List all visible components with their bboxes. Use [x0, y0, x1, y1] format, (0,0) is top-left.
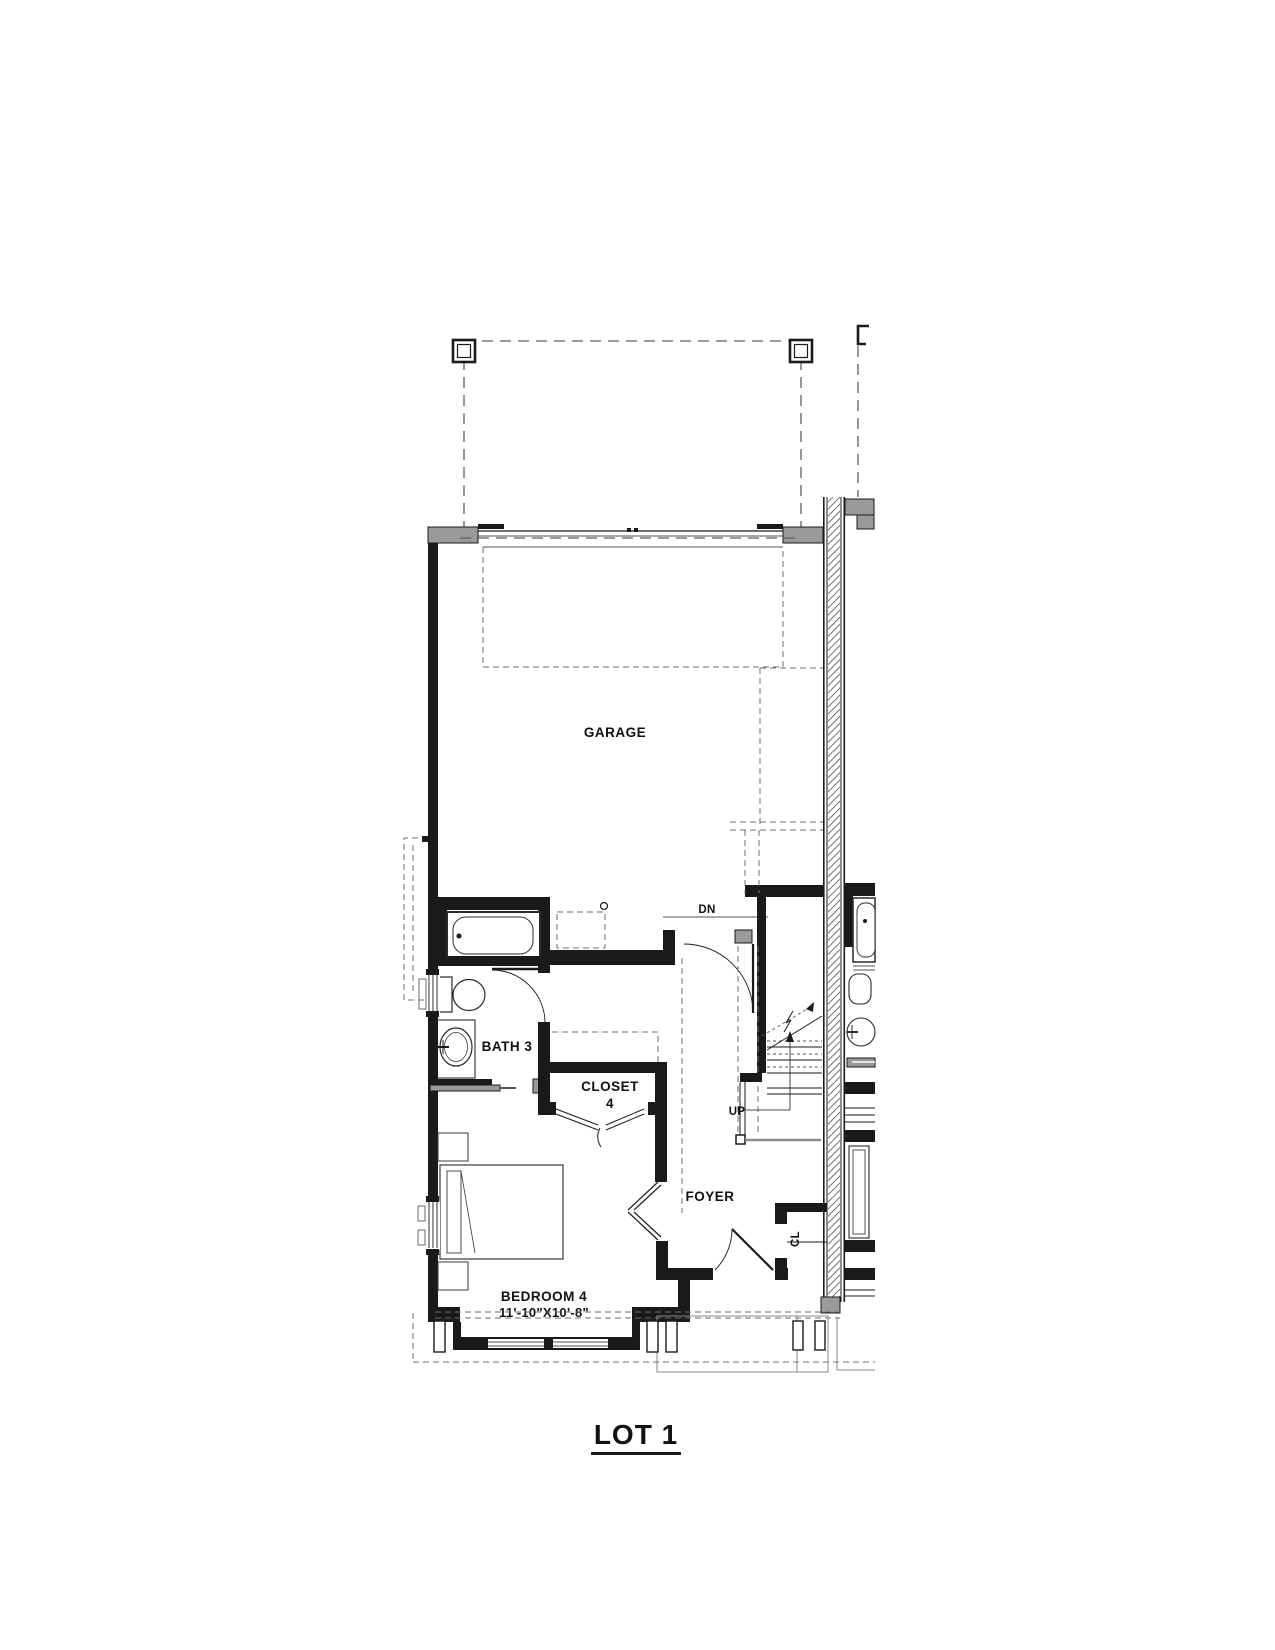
neighbor-window	[849, 1146, 869, 1238]
neighbor-sink	[847, 1018, 875, 1046]
foyer-label: FOYER	[685, 1189, 734, 1204]
drain-symbol	[601, 903, 608, 910]
porch-post	[815, 1321, 825, 1350]
stairs-up-label: UP	[729, 1106, 746, 1118]
porch-post	[434, 1321, 445, 1352]
neighbor-toilet	[849, 974, 871, 1004]
bedroom4-label: BEDROOM 4	[501, 1289, 587, 1304]
bed	[440, 1165, 563, 1259]
stairs-dn-label: DN	[698, 904, 715, 916]
neighbor-bathtub	[853, 898, 875, 962]
title-underline	[591, 1452, 681, 1455]
lot-title-text: LOT 1	[594, 1419, 678, 1450]
cl-label: CL	[790, 1231, 802, 1247]
garage-label: GARAGE	[584, 725, 646, 740]
toilet	[437, 977, 485, 1012]
porch-post	[647, 1321, 658, 1352]
porch-post	[793, 1321, 803, 1350]
bedroom-windows	[480, 1339, 616, 1348]
porch-post	[666, 1321, 677, 1352]
closet4-label: CLOSET	[581, 1079, 639, 1094]
sheet-title: LOT 1	[591, 1419, 681, 1455]
newel-post	[736, 1135, 745, 1144]
bathtub	[447, 912, 540, 966]
closet4-number: 4	[606, 1096, 614, 1111]
nightstand	[438, 1262, 468, 1290]
bath3-label: BATH 3	[482, 1039, 533, 1054]
floorplan-sheet: GARAGE	[0, 0, 1275, 1650]
paper-background	[0, 0, 1275, 1650]
nightstand	[438, 1133, 468, 1161]
floorplan-canvas: GARAGE	[0, 0, 1275, 1650]
